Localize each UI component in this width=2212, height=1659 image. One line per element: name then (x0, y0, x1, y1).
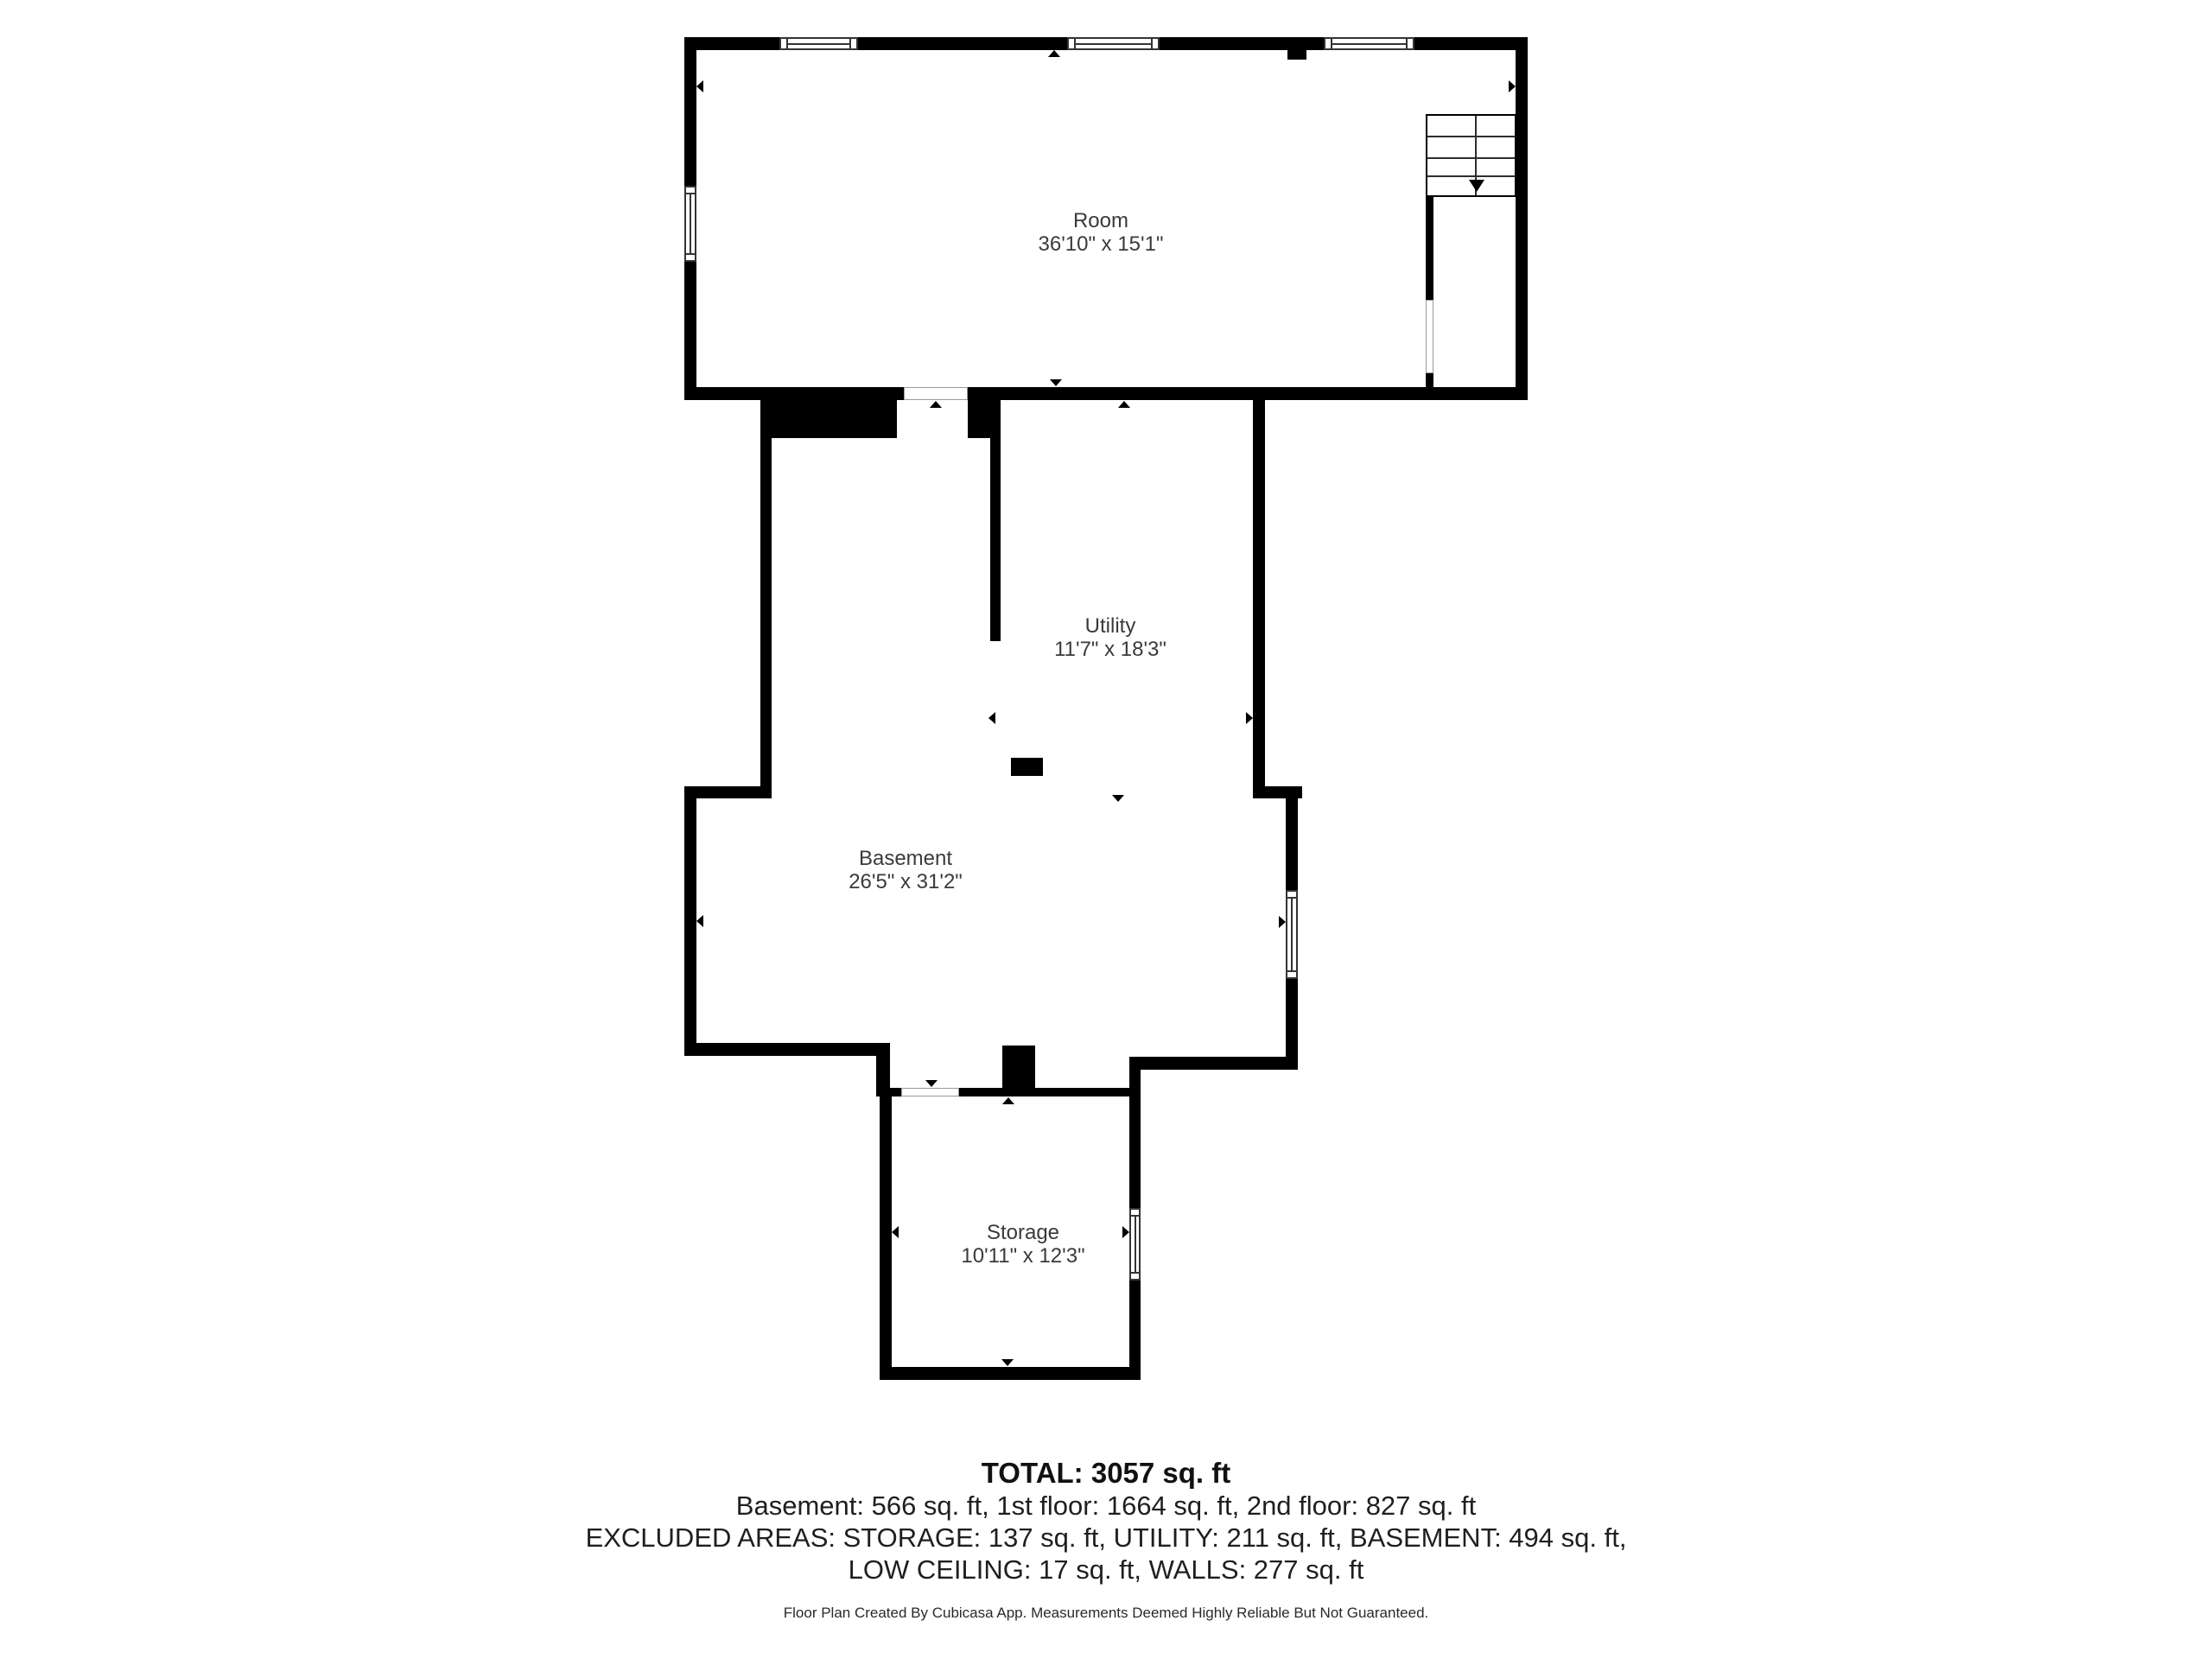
door-direction-arrow-icon (925, 1080, 938, 1087)
door-direction-arrow-icon (1002, 1097, 1014, 1104)
door-direction-arrow-icon (1048, 50, 1060, 57)
stair-tread (1427, 157, 1515, 159)
wall-utility-partition (990, 438, 1001, 641)
excluded-areas-text-line2: LOW CEILING: 17 sq. ft, WALLS: 277 sq. f… (0, 1554, 2212, 1586)
wall-storage-left (880, 1088, 892, 1380)
door-direction-arrow-icon (1050, 379, 1062, 386)
room-label-basement: Basement 26'5" x 31'2" (849, 847, 963, 893)
wall-mid-left (760, 399, 772, 798)
door-stair-corridor (1426, 300, 1433, 373)
door-direction-arrow-icon (696, 915, 703, 927)
stairs-down-arrow-icon (1469, 180, 1484, 192)
stair-tread (1427, 136, 1515, 137)
wall-block-left (760, 396, 897, 438)
door-direction-arrow-icon (1279, 916, 1286, 928)
floor-areas-text: Basement: 566 sq. ft, 1st floor: 1664 sq… (0, 1491, 2212, 1522)
floor-plan-canvas: Room 36'10" x 15'1" Utility 11'7" x 18'3… (0, 0, 2212, 1659)
door-direction-arrow-icon (892, 1226, 899, 1238)
stairs-icon (1426, 114, 1516, 197)
room-name: Utility (1054, 614, 1166, 638)
room-dimensions: 36'10" x 15'1" (1039, 232, 1164, 256)
total-area-text: TOTAL: 3057 sq. ft (0, 1457, 2212, 1490)
room-dimensions: 26'5" x 31'2" (849, 870, 963, 893)
room-name: Storage (961, 1221, 1084, 1244)
room-label-utility: Utility 11'7" x 18'3" (1054, 614, 1166, 661)
door-direction-arrow-icon (1509, 80, 1516, 92)
window-top-1 (779, 37, 858, 50)
window-room-left (684, 186, 696, 262)
door-direction-arrow-icon (988, 712, 995, 724)
wall-room-right (1516, 37, 1528, 400)
wall-step-left (684, 786, 772, 798)
door-direction-arrow-icon (1122, 1226, 1129, 1238)
door-direction-arrow-icon (930, 401, 942, 408)
wall-basement-bottom-left (684, 1043, 890, 1056)
door-basement-storage (901, 1088, 959, 1096)
window-basement-right (1286, 890, 1298, 979)
wall-utility-right (1253, 387, 1265, 798)
room-dimensions: 10'11" x 12'3" (961, 1244, 1084, 1268)
door-room-bottom (904, 387, 968, 400)
window-top-3 (1324, 37, 1414, 50)
room-label-room: Room 36'10" x 15'1" (1039, 209, 1164, 256)
door-direction-arrow-icon (1112, 795, 1124, 802)
door-direction-arrow-icon (1118, 401, 1130, 408)
pillar-middle (1011, 758, 1043, 776)
wall-basement-bottom-right (1129, 1057, 1298, 1070)
disclaimer-text: Floor Plan Created By Cubicasa App. Meas… (0, 1605, 2212, 1622)
door-direction-arrow-icon (696, 80, 703, 92)
room-name: Basement (849, 847, 963, 870)
window-storage-right (1129, 1208, 1141, 1281)
stair-tread (1427, 175, 1515, 177)
room-dimensions: 11'7" x 18'3" (1054, 638, 1166, 661)
door-direction-arrow-icon (1001, 1359, 1014, 1366)
window-top-2 (1067, 37, 1160, 50)
excluded-areas-text-line1: EXCLUDED AREAS: STORAGE: 137 sq. ft, UTI… (0, 1522, 2212, 1554)
room-label-storage: Storage 10'11" x 12'3" (961, 1221, 1084, 1268)
wall-basement-left (684, 786, 696, 1056)
door-direction-arrow-icon (1246, 712, 1253, 724)
wall-storage-bottom (880, 1367, 1141, 1380)
room-name: Room (1039, 209, 1164, 232)
wall-top-tab (1287, 50, 1306, 60)
wall-block-right (968, 396, 1001, 438)
